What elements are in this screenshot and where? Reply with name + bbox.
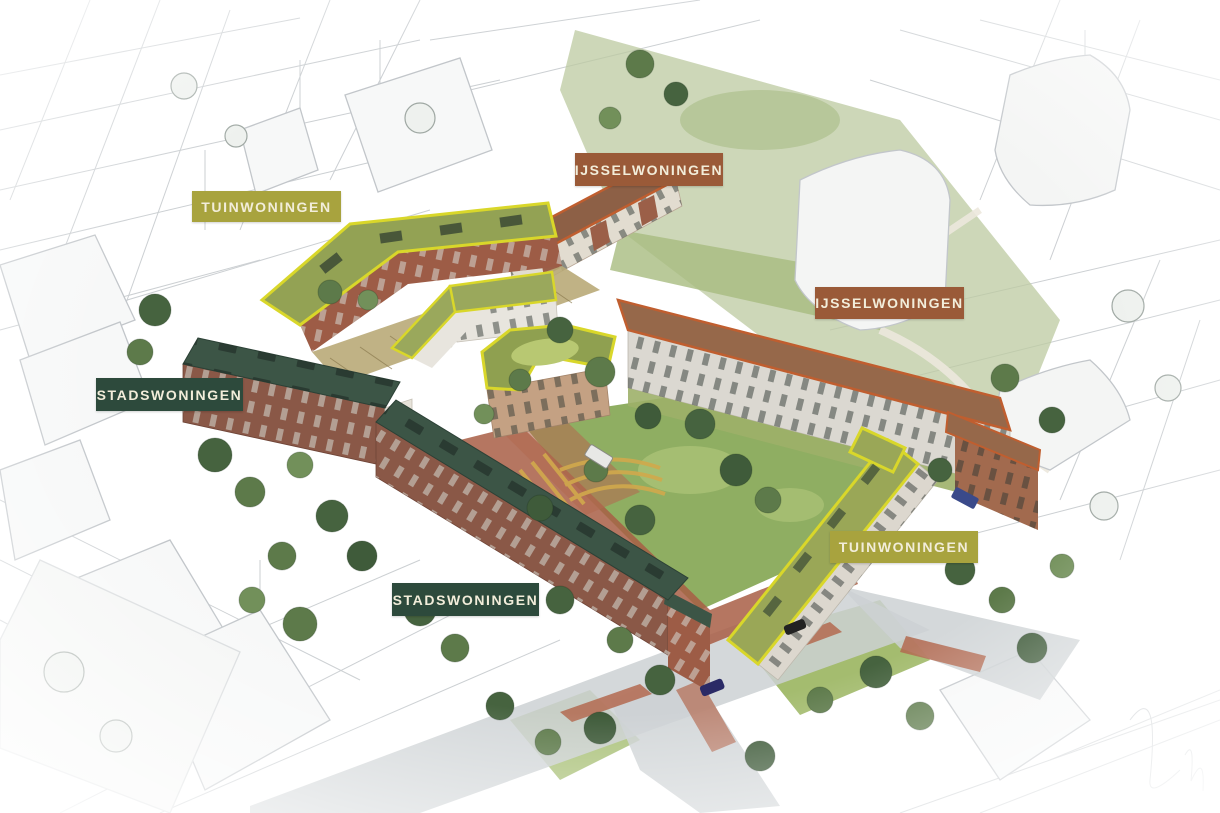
label-tuinwoningen-top-left: TUINWONINGEN — [192, 191, 341, 222]
masterplan-rendering: TUINWONINGEN IJSSELWONINGEN IJSSELWONING… — [0, 0, 1220, 813]
label-text: STADSWONINGEN — [393, 592, 539, 608]
label-tuinwoningen-right: TUINWONINGEN — [830, 531, 978, 563]
label-ijsselwoningen-top: IJSSELWONINGEN — [575, 153, 723, 186]
label-stadswoningen-bottom: STADSWONINGEN — [392, 583, 539, 616]
label-text: IJSSELWONINGEN — [575, 162, 723, 178]
label-ijsselwoningen-right: IJSSELWONINGEN — [815, 287, 964, 319]
label-text: STADSWONINGEN — [97, 387, 243, 403]
label-text: IJSSELWONINGEN — [815, 295, 963, 311]
label-text: TUINWONINGEN — [201, 199, 331, 215]
label-stadswoningen-left: STADSWONINGEN — [96, 378, 243, 411]
label-text: TUINWONINGEN — [839, 539, 969, 555]
